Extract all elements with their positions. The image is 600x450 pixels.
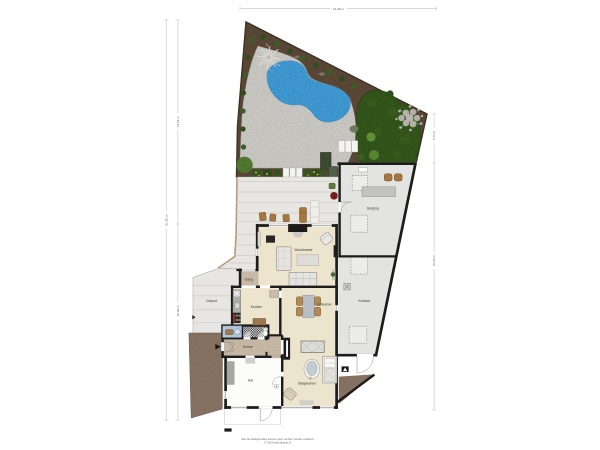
svg-text:Keuken: Keuken bbox=[251, 305, 263, 309]
svg-text:10.93 m: 10.93 m bbox=[432, 254, 436, 266]
svg-text:4.71 m: 4.71 m bbox=[432, 130, 436, 140]
svg-text:Kantoor: Kantoor bbox=[359, 299, 372, 303]
svg-text:Aan de plattegronden kunnen ge: Aan de plattegronden kunnen geen rechten… bbox=[241, 437, 314, 441]
svg-text:14.26 m: 14.26 m bbox=[333, 7, 345, 11]
svg-text:21.50 m: 21.50 m bbox=[164, 214, 168, 226]
svg-text:15.39 m: 15.39 m bbox=[176, 305, 180, 317]
svg-text:Entree: Entree bbox=[243, 345, 253, 349]
svg-text:Eetkamer: Eetkamer bbox=[317, 302, 332, 306]
svg-text:Woonkamer: Woonkamer bbox=[294, 248, 313, 252]
svg-text:Gang: Gang bbox=[245, 277, 253, 281]
svg-text:Berging: Berging bbox=[367, 207, 379, 211]
svg-text:© 2024 www.plando.nl: © 2024 www.plando.nl bbox=[264, 441, 291, 445]
svg-text:Hal: Hal bbox=[248, 378, 253, 382]
svg-text:Slaapkamer: Slaapkamer bbox=[298, 382, 317, 386]
svg-text:Carport: Carport bbox=[206, 299, 217, 303]
svg-text:16.01 m: 16.01 m bbox=[176, 115, 180, 127]
